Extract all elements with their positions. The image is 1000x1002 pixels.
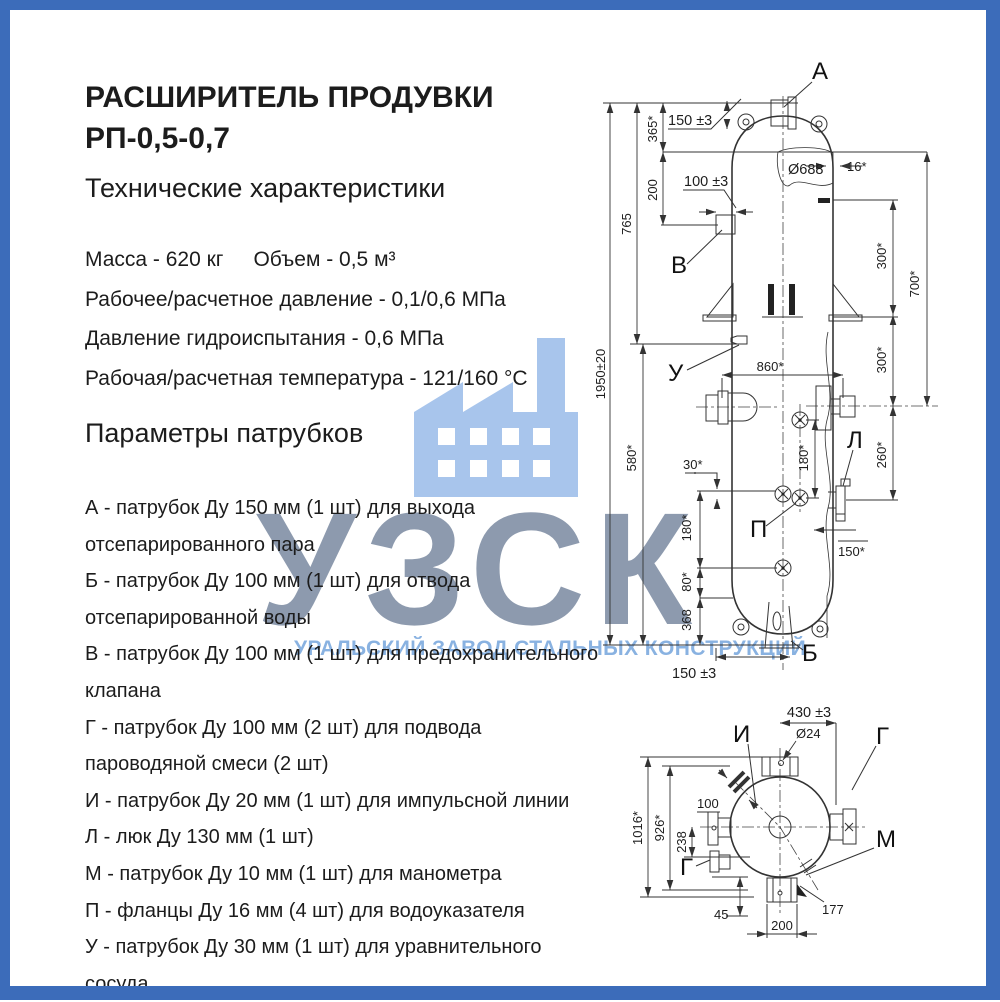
dim-368: 368	[679, 609, 694, 631]
dim-200: 200	[645, 179, 660, 201]
spec-hydro: Давление гидроиспытания - 0,6 МПа	[85, 319, 528, 359]
label-nozzle-b: Б	[802, 640, 818, 667]
spec-mass-volume: Масса - 620 кгОбъем - 0,5 м³	[85, 240, 528, 280]
list-item: В - патрубок Ду 100 мм (1 шт) для предох…	[85, 636, 601, 709]
list-item: Б - патрубок Ду 100 мм (1 шт) для отвода…	[85, 563, 601, 636]
page-title: РАСШИРИТЕЛЬ ПРОДУВКИ РП-0,5-0,7	[85, 77, 494, 159]
dim-45: 45	[714, 907, 728, 922]
dim-580: 580*	[624, 445, 639, 472]
dim-200-bottom: 200	[771, 918, 793, 933]
dim-150-top: 150 ±3	[668, 113, 712, 129]
dim-wall-16: 16*	[847, 159, 867, 174]
dim-365: 365*	[645, 116, 660, 143]
label-nozzle-m: М	[876, 826, 896, 853]
dim-100-flange: 100	[697, 796, 719, 811]
dim-700: 700*	[907, 271, 922, 298]
gauge-flanges	[775, 412, 808, 576]
label-flange-p: П	[750, 516, 767, 543]
dim-100: 100 ±3	[684, 174, 728, 190]
bottom-view: 430 ±3 Ø24 100 1016* 926* 238 45 200 177…	[630, 705, 896, 938]
label-luk-l: Л	[847, 427, 863, 454]
list-item: И - патрубок Ду 20 мм (1 шт) для импульс…	[85, 783, 601, 820]
dim-430: 430 ±3	[787, 705, 831, 721]
title-line2: РП-0,5-0,7	[85, 122, 230, 155]
list-item: Л - люк Ду 130 мм (1 шт)	[85, 819, 601, 856]
dim-80: 80*	[679, 572, 694, 592]
dim-180-left: 180*	[679, 515, 694, 542]
label-nozzle-g-left: Г	[680, 854, 693, 881]
specs-heading: Технические характеристики	[85, 173, 445, 204]
nozzles-list: А - патрубок Ду 150 мм (1 шт) для выхода…	[85, 490, 601, 1002]
dim-300-lower: 300*	[874, 347, 889, 374]
dim-177: 177	[822, 902, 844, 917]
specs-list: Масса - 620 кгОбъем - 0,5 м³ Рабочее/рас…	[85, 240, 528, 398]
dim-diameter: Ø688	[788, 162, 823, 178]
dim-1016: 1016*	[630, 811, 645, 845]
dim-238: 238	[674, 831, 689, 853]
dim-150-bottom: 150 ±3	[672, 666, 716, 682]
front-view: 1950±20 765 580* 365* 200 150 ±3 100 ±3 …	[593, 58, 938, 682]
dim-300-upper: 300*	[874, 243, 889, 270]
list-item: Г - патрубок Ду 100 мм (2 шт) для подвод…	[85, 710, 601, 783]
label-nozzle-g-right: Г	[876, 723, 889, 750]
dim-150-right: 150*	[838, 544, 865, 559]
label-nozzle-u: У	[668, 360, 684, 387]
dim-total-height: 1950±20	[593, 349, 608, 400]
list-item: А - патрубок Ду 150 мм (1 шт) для выхода…	[85, 490, 601, 563]
spec-mass: Масса - 620 кг	[85, 248, 223, 271]
spec-pressure: Рабочее/расчетное давление - 0,1/0,6 МПа	[85, 280, 528, 320]
dim-30: 30*	[683, 457, 703, 472]
list-item: У - патрубок Ду 30 мм (1 шт) для уравнит…	[85, 929, 601, 1002]
label-nozzle-v: В	[671, 252, 687, 279]
label-nozzle-a: А	[812, 58, 828, 85]
dim-260: 260*	[874, 442, 889, 469]
label-nozzle-i: И	[733, 721, 750, 748]
dim-860: 860*	[757, 359, 784, 374]
dim-926: 926*	[652, 815, 667, 842]
dim-765: 765	[619, 213, 634, 235]
spec-temperature: Рабочая/расчетная температура - 121/160 …	[85, 359, 528, 399]
title-line1: РАСШИРИТЕЛЬ ПРОДУВКИ	[85, 81, 494, 114]
dim-d24: Ø24	[796, 726, 821, 741]
datasheet-page: { "title": {"line1": "РАСШИРИТЕЛЬ ПРОДУВ…	[0, 0, 1000, 1000]
spec-volume: Объем - 0,5 м³	[253, 248, 395, 271]
list-item: М - патрубок Ду 10 мм (1 шт) для маномет…	[85, 856, 601, 893]
nozzles-heading: Параметры патрубков	[85, 418, 363, 449]
dim-180-gauge: 180*	[796, 445, 811, 472]
list-item: П - фланцы Ду 16 мм (4 шт) для водоуказа…	[85, 893, 601, 930]
